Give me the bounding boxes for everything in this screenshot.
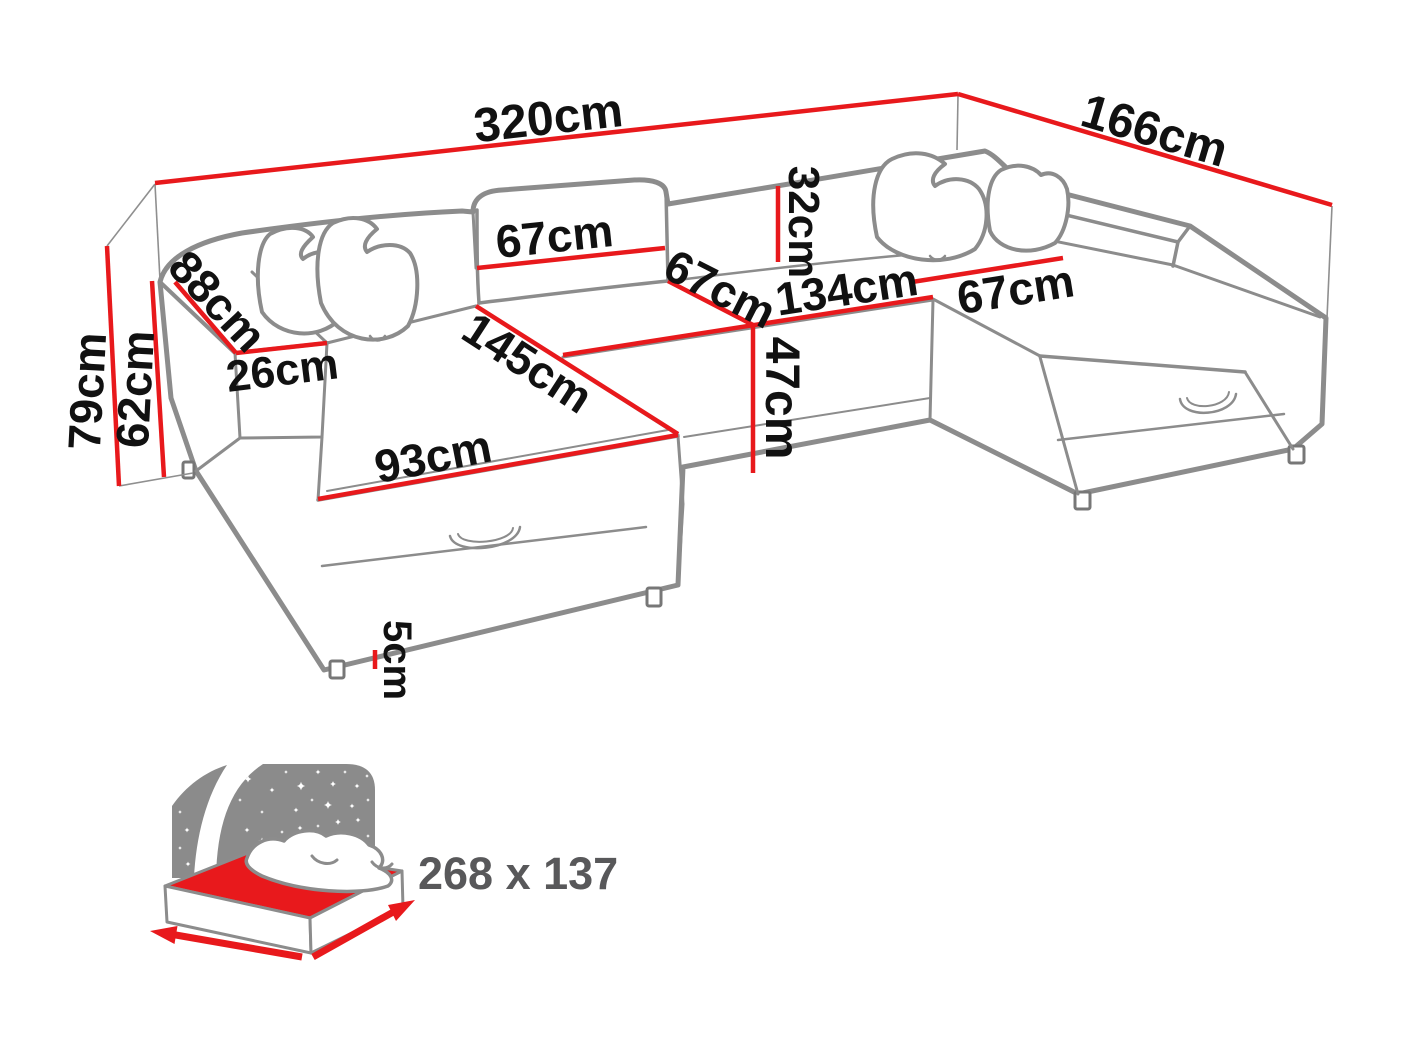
sofa-dimension-diagram: 320cm 166cm 79cm 62cm 88cm 26cm 67cm 67c… — [0, 0, 1408, 1056]
bed-icon — [165, 831, 403, 953]
sleeping-area-size-label: 268 x 137 — [418, 848, 618, 899]
label-backrest-height: 32cm — [779, 166, 828, 279]
label-seat-height: 47cm — [755, 337, 808, 460]
label-total-depth: 166cm — [1075, 85, 1233, 178]
sofa-illustration — [160, 151, 1326, 678]
label-total-width: 320cm — [471, 84, 625, 153]
label-leg-height: 5cm — [375, 620, 419, 700]
diagram-canvas: 320cm 166cm 79cm 62cm 88cm 26cm 67cm 67c… — [0, 0, 1408, 1056]
pillow-right-back — [988, 166, 1069, 251]
sleeping-function-icon: 268 x 137 — [150, 764, 618, 957]
label-armrest-height: 62cm — [106, 329, 164, 449]
